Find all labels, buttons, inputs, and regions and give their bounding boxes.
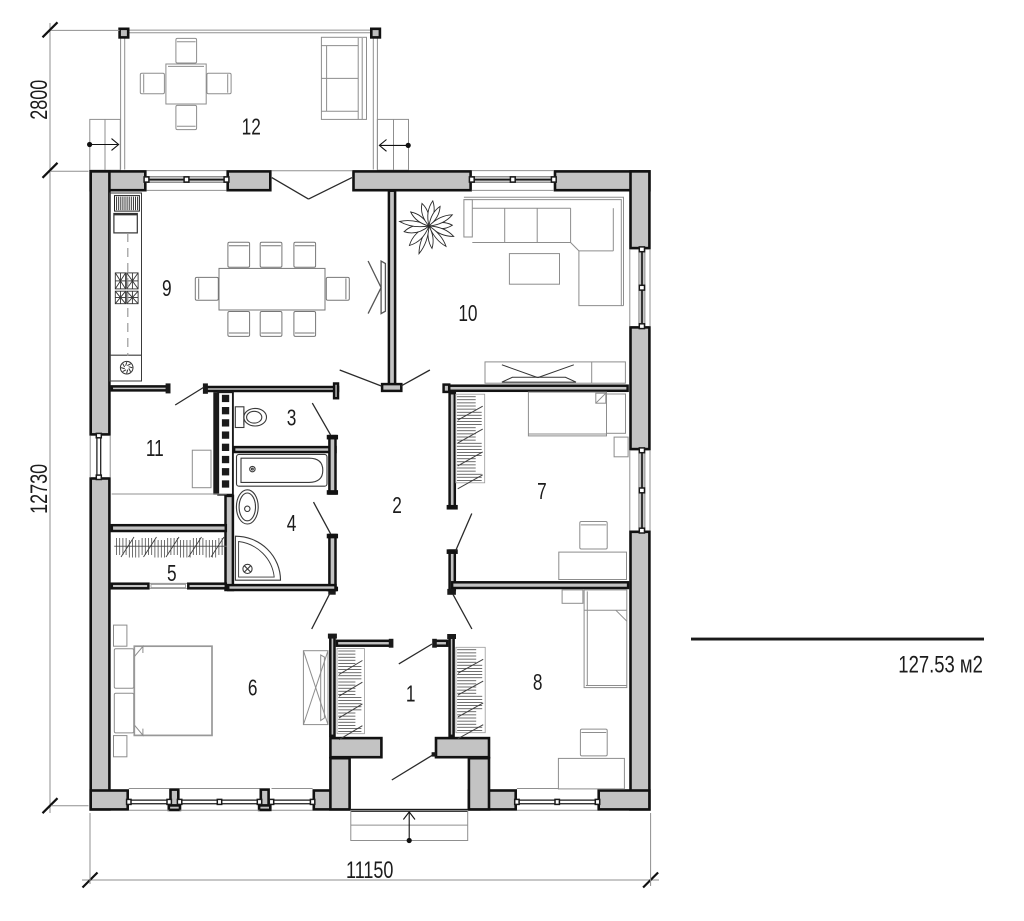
svg-text:10: 10	[458, 302, 477, 327]
svg-text:127.53 м2: 127.53 м2	[898, 651, 983, 678]
svg-text:6: 6	[248, 676, 258, 701]
svg-text:11: 11	[146, 437, 164, 462]
svg-text:9: 9	[162, 277, 172, 302]
svg-text:5: 5	[167, 562, 177, 587]
svg-text:11150: 11150	[346, 858, 393, 884]
svg-text:12: 12	[242, 115, 261, 140]
svg-text:2800: 2800	[26, 80, 52, 120]
svg-text:4: 4	[287, 512, 297, 537]
svg-text:7: 7	[537, 480, 547, 505]
svg-text:1: 1	[406, 682, 416, 707]
svg-text:3: 3	[287, 406, 297, 431]
svg-text:8: 8	[533, 671, 543, 696]
svg-text:12730: 12730	[26, 464, 52, 514]
svg-text:2: 2	[392, 494, 402, 519]
